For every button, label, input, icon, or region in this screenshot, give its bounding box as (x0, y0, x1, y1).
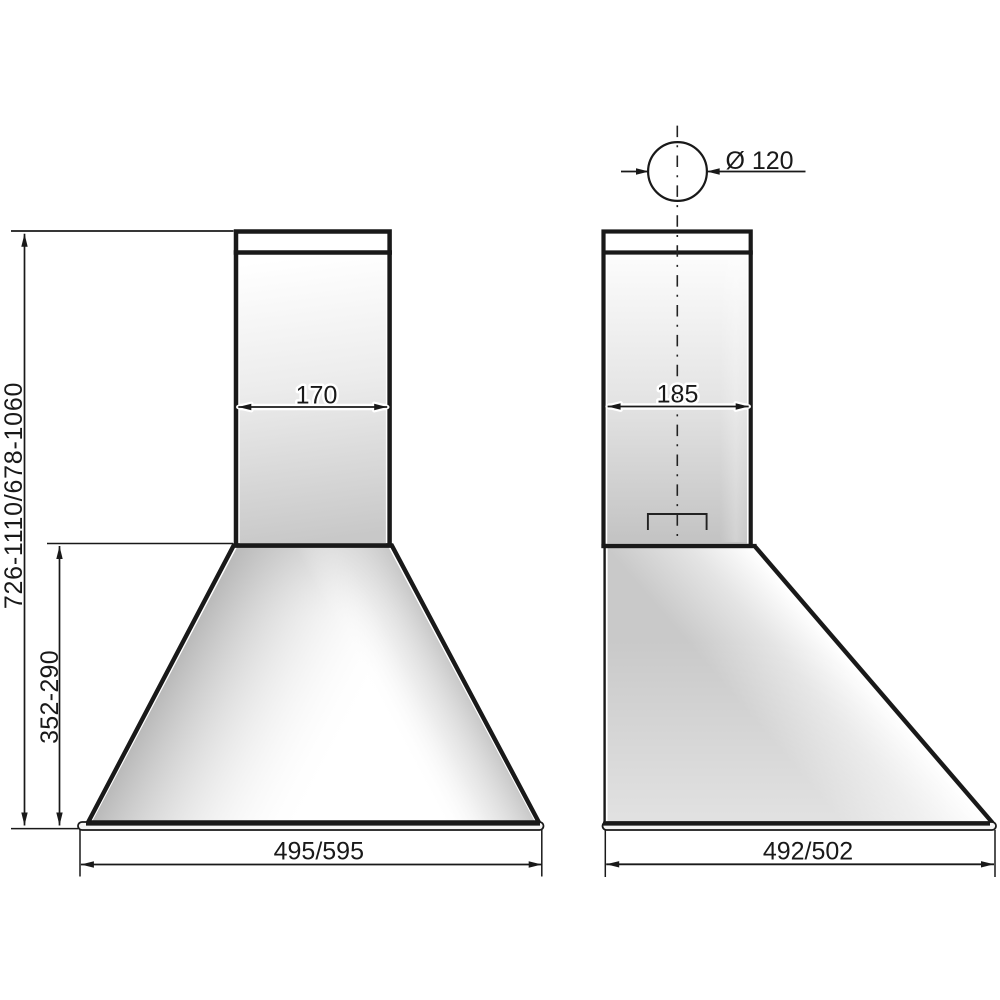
svg-text:495/595: 495/595 (274, 838, 364, 866)
svg-text:492/502: 492/502 (763, 838, 853, 866)
